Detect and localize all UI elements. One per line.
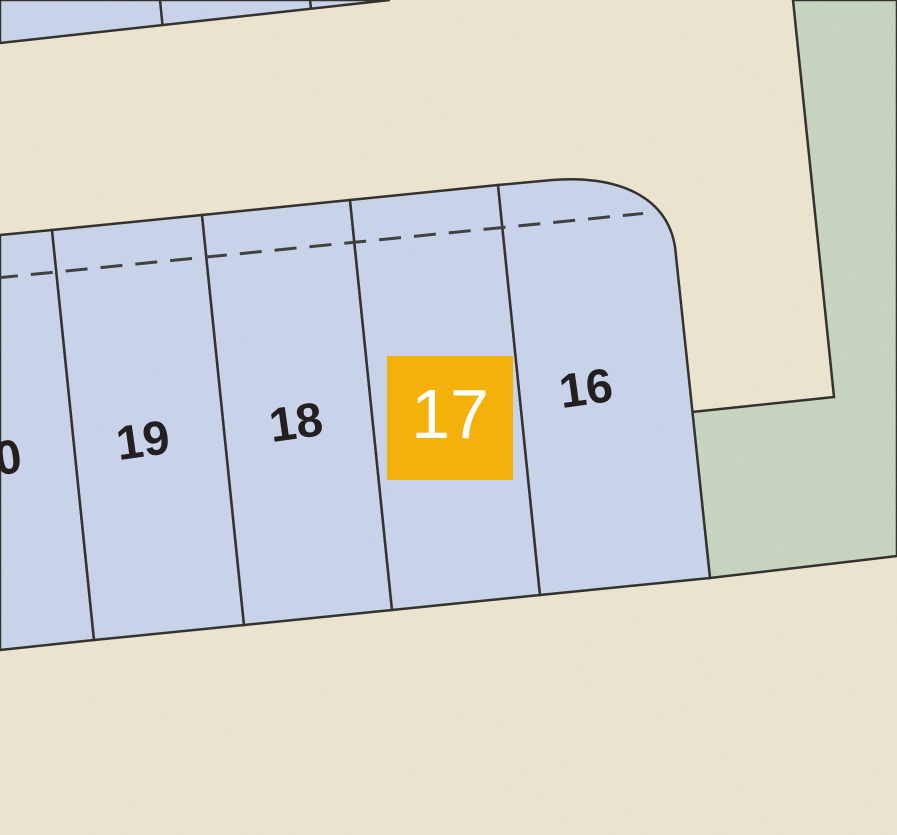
lot-label-17-selected: 17 — [411, 375, 489, 453]
lot-label-18: 18 — [266, 393, 326, 453]
lot-row — [0, 179, 710, 650]
lot-label-16: 16 — [556, 359, 616, 419]
lot-label-19: 19 — [113, 411, 173, 471]
plat-map: 20 19 18 17 16 — [0, 0, 897, 835]
top-lot-divider — [310, 0, 311, 9]
